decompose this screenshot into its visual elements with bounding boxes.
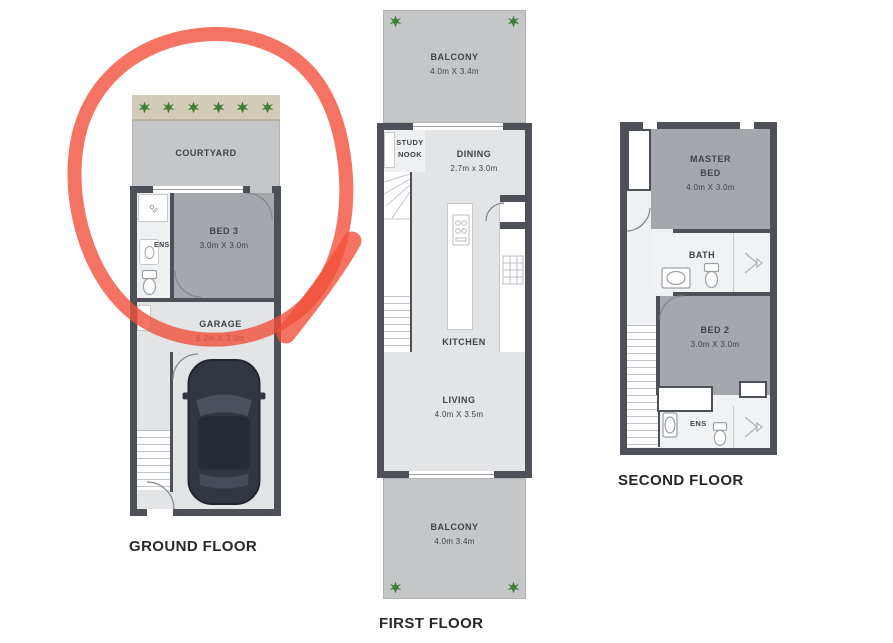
room-label: ENS [690,419,707,428]
shower [733,406,770,448]
sliding-door [153,186,243,193]
room-bath: BATH [651,233,770,292]
room-label: BALCONY [431,53,479,63]
door-jamb [500,222,525,229]
sink-icon [662,412,678,438]
room-dims: 2.7m x 3.0m [450,164,497,173]
room-dims: 4.0m X 3.0m [686,183,735,192]
room-dims: 4.0m X 3.5m [435,410,484,419]
door-opening [250,186,272,193]
room-balcony-bottom: BALCONY 4.0m 3.4m [383,478,526,599]
staircase [384,172,412,352]
plant-icon [187,101,200,114]
room-label: ENS [154,242,170,249]
staircase [137,430,170,490]
car-icon [182,357,266,507]
plant-icon [389,15,402,28]
room-label: COURTYARD [133,149,279,159]
room-label: BED [700,169,721,179]
room-living: LIVING 4.0m X 3.5m [414,396,504,419]
plant-icon [261,101,274,114]
winder-stairs [384,172,410,220]
room-dims: 3.0m X 3.0m [691,340,740,349]
kitchen-island [447,203,473,330]
door-niche [504,202,525,222]
cooktop-icon [452,214,470,246]
room-study-nook: STUDY NOOK [384,130,425,172]
door-opening [147,509,173,516]
floor-title-first: FIRST FLOOR [379,615,483,632]
room-dims: 6.2m X 3.0m [196,334,245,343]
room-label: STUDY [396,138,423,147]
window [740,122,754,129]
stair-treads [384,290,410,352]
room-dining: DINING 2.7m x 3.0m [429,150,519,173]
plant-icon [212,101,225,114]
room-label: LIVING [442,396,475,406]
sliding-door [409,471,494,478]
second-floor-house: MASTER BED 4.0m X 3.0m BATH [620,122,777,455]
room-label: BALCONY [431,523,479,533]
room-dims: 4.0m X 3.4m [430,67,479,76]
room-label: BATH [677,251,727,261]
room-ens-ground: ENS [137,193,174,302]
room-label: KITCHEN [424,338,504,348]
plan-second-floor: MASTER BED 4.0m X 3.0m BATH [600,0,893,643]
shower [733,233,770,292]
room-dims: 4.0m 3.4m [434,537,475,546]
room-bed3: BED 3 3.0m X 3.0m [174,193,274,302]
wardrobe [657,386,713,412]
room-label: BED 2 [700,326,729,336]
room-courtyard: COURTYARD [132,121,280,186]
first-floor-house: STUDY NOOK DINING 2.7m x 3.0m [377,123,532,478]
window [643,122,657,129]
shower-screen-icon [741,413,763,441]
shower-head-icon [148,203,159,214]
plant-icon [507,15,520,28]
laundry-tub [137,305,151,331]
room-label: BED 3 [209,227,238,237]
room-dims: 3.0m X 3.0m [200,241,249,250]
wall [170,352,173,492]
plant-icon [162,101,175,114]
plant-icon [507,581,520,594]
wardrobe [627,129,651,191]
garden-strip [132,95,280,121]
room-garage: GARAGE 6.2m X 3.0m [137,302,274,509]
shower [138,194,168,222]
toilet-icon [703,261,720,291]
sliding-door [413,123,503,130]
plant-icon [138,101,151,114]
floorplan-canvas: COURTYARD ENS BED 3 3 [0,0,893,643]
toilet-icon [141,269,158,297]
room-balcony-top: BALCONY 4.0m X 3.4m [383,10,526,123]
room-label: GARAGE [199,320,242,330]
plant-icon [236,101,249,114]
vanity [739,381,767,398]
study-desk [384,132,395,168]
room-label: NOOK [398,150,422,159]
room-master-bed: MASTER BED 4.0m X 3.0m [651,129,770,229]
shower-screen-icon [741,249,763,277]
room-label: MASTER [690,155,731,165]
plan-ground-floor: COURTYARD ENS BED 3 3 [0,0,330,643]
door-jamb [500,195,525,202]
plan-first-floor: BALCONY 4.0m X 3.4m STUDY NOOK [340,0,570,643]
plant-icon [389,581,402,594]
room-label: DINING [457,150,492,160]
ground-floor-house: ENS BED 3 3.0m X 3.0m GARAGE 6.2m X 3.0m [130,186,281,516]
sink-rack-icon [502,255,524,285]
floor-title-ground: GROUND FLOOR [129,538,257,555]
toilet-icon [712,421,728,448]
floor-title-second: SECOND FLOOR [618,472,744,489]
sink-icon [661,267,691,289]
